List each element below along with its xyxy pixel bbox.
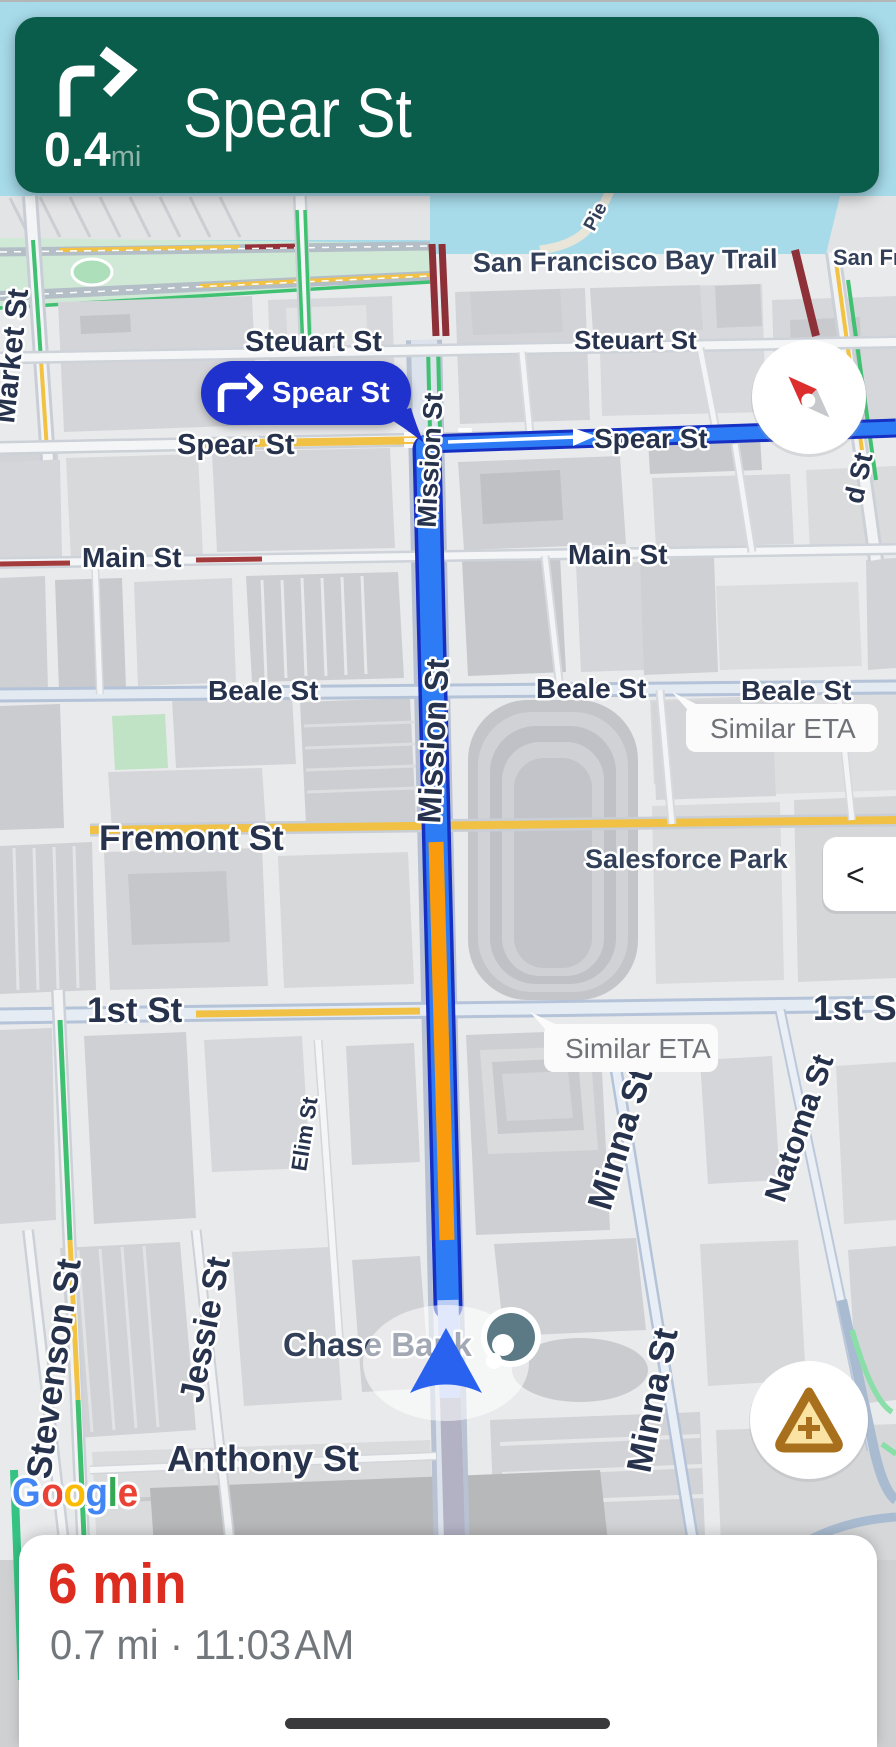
svg-text:Fremont St: Fremont St	[99, 819, 284, 858]
svg-text:San Fran: San Fran	[833, 245, 896, 270]
svg-text:Anthony St: Anthony St	[167, 1438, 359, 1479]
svg-text:San Francisco Bay Trail: San Francisco Bay Trail	[473, 244, 778, 278]
svg-text:Beale St: Beale St	[741, 675, 852, 706]
svg-text:Similar ETA: Similar ETA	[710, 713, 856, 744]
svg-text:Spear St: Spear St	[177, 429, 295, 461]
svg-text:Main St: Main St	[568, 539, 668, 570]
svg-text:Beale St: Beale St	[208, 675, 319, 706]
svg-text:Spear St: Spear St	[594, 423, 708, 454]
svg-text:Steuart St: Steuart St	[574, 325, 697, 355]
svg-text:Steuart St: Steuart St	[245, 326, 382, 358]
svg-text:1st St: 1st St	[813, 989, 896, 1028]
svg-text:g: g	[86, 1471, 108, 1516]
svg-text:1st St: 1st St	[87, 991, 183, 1030]
svg-text:Beale St: Beale St	[536, 673, 647, 704]
svg-text:Main St: Main St	[82, 542, 182, 573]
svg-text:Salesforce Park: Salesforce Park	[585, 844, 789, 874]
svg-text:o: o	[41, 1471, 63, 1516]
svg-text:Similar ETA: Similar ETA	[565, 1033, 711, 1064]
svg-text:e: e	[118, 1471, 138, 1516]
svg-text:G: G	[12, 1471, 41, 1516]
svg-text:<: <	[846, 857, 865, 893]
svg-text:l: l	[108, 1471, 118, 1516]
svg-text:o: o	[63, 1471, 85, 1516]
